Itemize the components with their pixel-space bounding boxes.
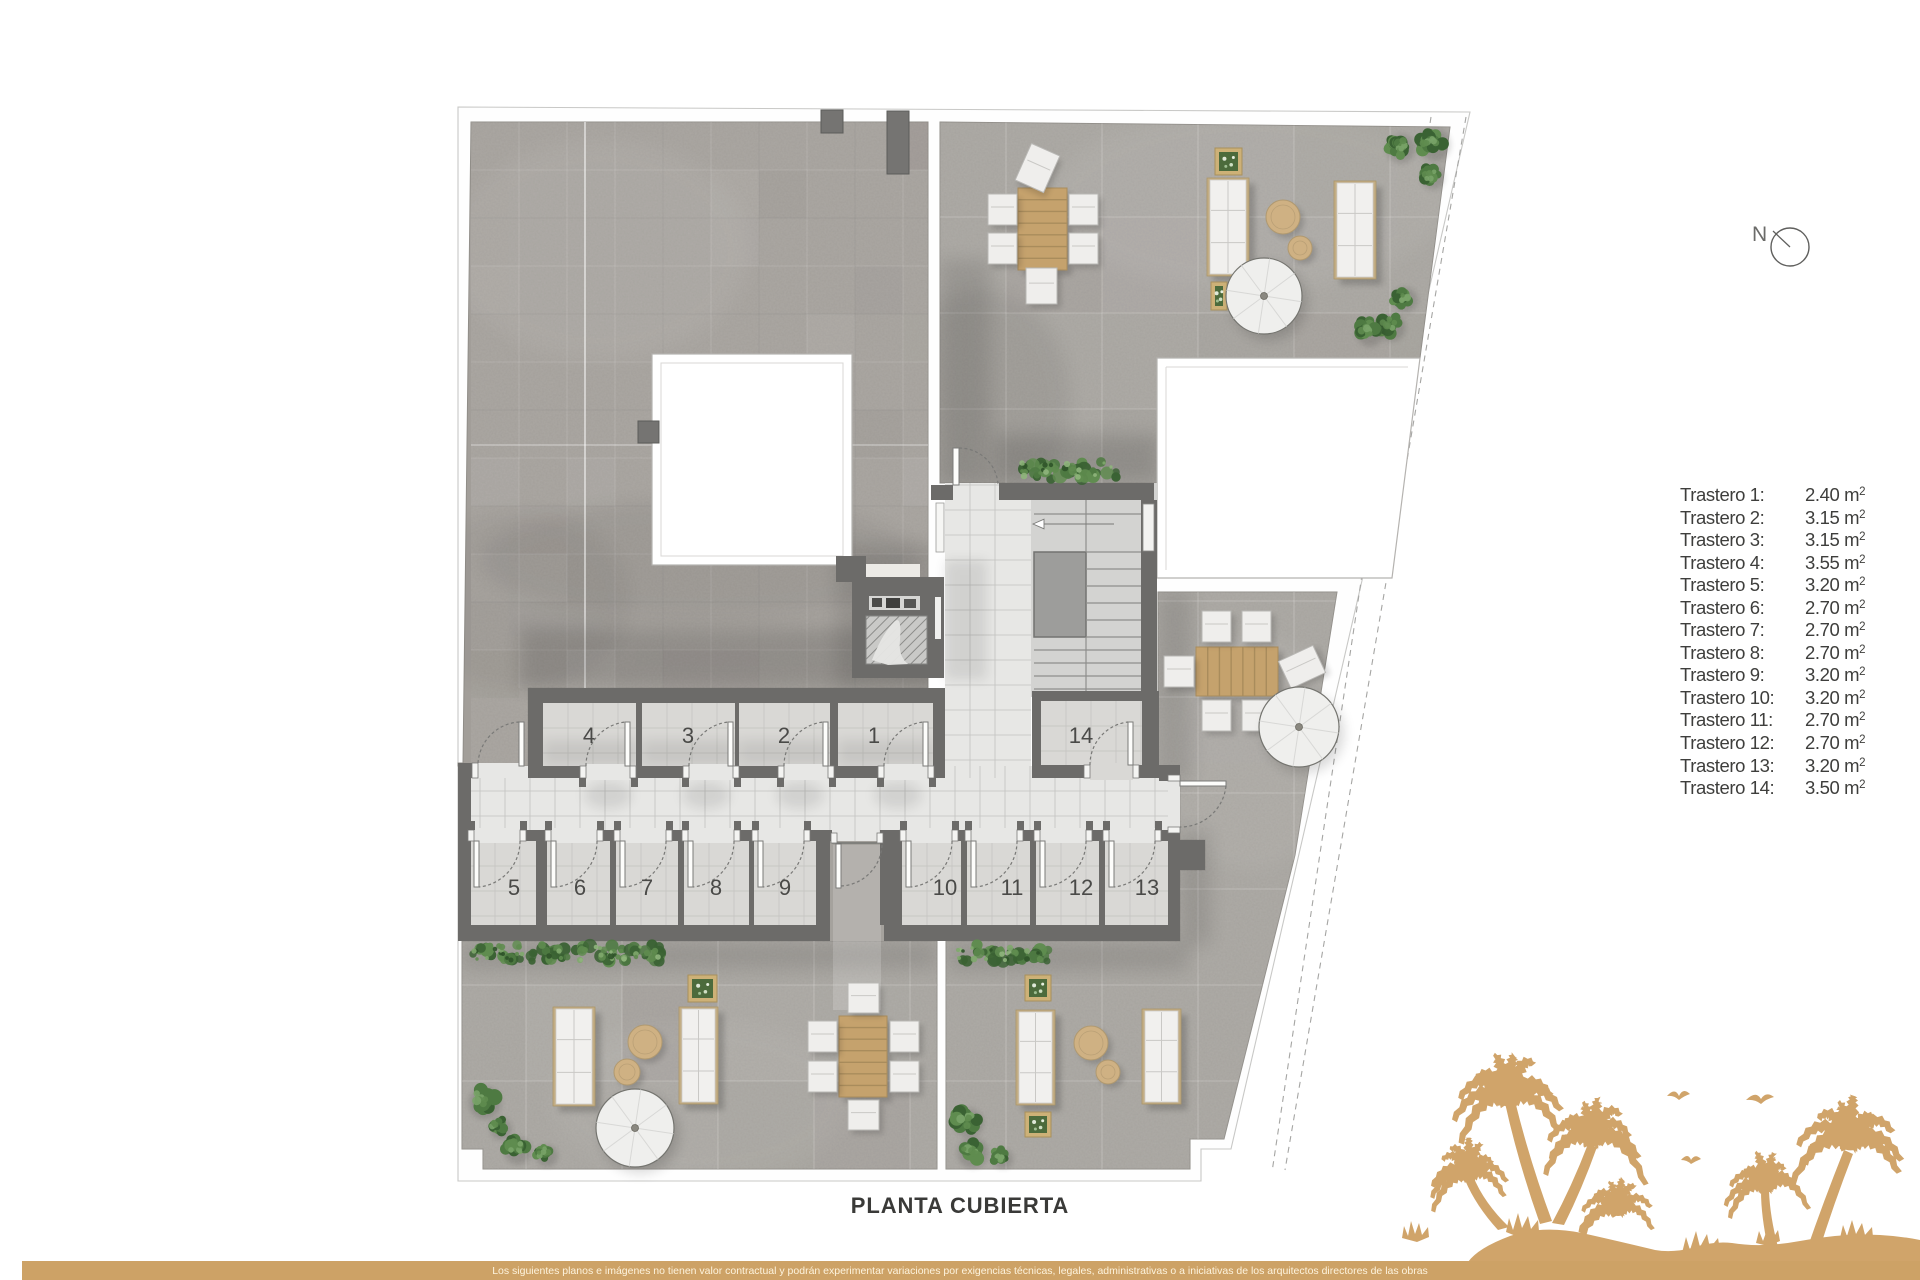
svg-text:9: 9 xyxy=(779,875,791,900)
svg-text:5: 5 xyxy=(508,875,520,900)
svg-text:3.20 m2: 3.20 m2 xyxy=(1805,664,1865,685)
svg-text:Trastero 6:: Trastero 6: xyxy=(1680,597,1764,618)
svg-text:2.70 m2: 2.70 m2 xyxy=(1805,732,1865,753)
svg-text:Trastero 5:: Trastero 5: xyxy=(1680,574,1764,595)
svg-text:Trastero 4:: Trastero 4: xyxy=(1680,552,1764,573)
svg-text:14: 14 xyxy=(1069,723,1093,748)
svg-text:Trastero 7:: Trastero 7: xyxy=(1680,619,1764,640)
svg-text:2.40 m2: 2.40 m2 xyxy=(1805,484,1865,505)
svg-text:Trastero 10:: Trastero 10: xyxy=(1680,687,1774,708)
svg-text:2.70 m2: 2.70 m2 xyxy=(1805,619,1865,640)
svg-text:3: 3 xyxy=(682,723,694,748)
svg-text:3.55 m2: 3.55 m2 xyxy=(1805,552,1865,573)
svg-text:3.50 m2: 3.50 m2 xyxy=(1805,777,1865,798)
svg-text:13: 13 xyxy=(1135,875,1159,900)
svg-text:Trastero 12:: Trastero 12: xyxy=(1680,732,1774,753)
svg-text:3.15 m2: 3.15 m2 xyxy=(1805,529,1865,550)
svg-text:11: 11 xyxy=(1001,875,1024,900)
svg-text:PLANTA CUBIERTA: PLANTA CUBIERTA xyxy=(851,1193,1069,1218)
svg-text:Los siguientes planos e imágen: Los siguientes planos e imágenes no tien… xyxy=(492,1265,1428,1277)
svg-text:Trastero 2:: Trastero 2: xyxy=(1680,507,1764,528)
svg-text:Trastero 14:: Trastero 14: xyxy=(1680,777,1774,798)
svg-text:2.70 m2: 2.70 m2 xyxy=(1805,709,1865,730)
svg-text:12: 12 xyxy=(1069,875,1093,900)
svg-text:3.20 m2: 3.20 m2 xyxy=(1805,755,1865,776)
svg-text:Trastero 8:: Trastero 8: xyxy=(1680,642,1764,663)
svg-text:3.15 m2: 3.15 m2 xyxy=(1805,507,1865,528)
svg-text:Trastero 11:: Trastero 11: xyxy=(1680,709,1773,730)
svg-text:4: 4 xyxy=(583,723,595,748)
svg-text:Trastero 1:: Trastero 1: xyxy=(1680,484,1764,505)
svg-text:10: 10 xyxy=(933,875,957,900)
svg-text:7: 7 xyxy=(641,875,653,900)
svg-text:Trastero 13:: Trastero 13: xyxy=(1680,755,1774,776)
svg-text:N: N xyxy=(1752,223,1767,246)
svg-text:Trastero 3:: Trastero 3: xyxy=(1680,529,1764,550)
svg-text:2: 2 xyxy=(778,723,790,748)
svg-text:1: 1 xyxy=(868,723,880,748)
svg-text:8: 8 xyxy=(710,875,722,900)
svg-text:3.20 m2: 3.20 m2 xyxy=(1805,687,1865,708)
svg-text:2.70 m2: 2.70 m2 xyxy=(1805,642,1865,663)
svg-text:Trastero 9:: Trastero 9: xyxy=(1680,664,1764,685)
svg-text:6: 6 xyxy=(574,875,586,900)
svg-text:2.70 m2: 2.70 m2 xyxy=(1805,597,1865,618)
svg-text:3.20 m2: 3.20 m2 xyxy=(1805,574,1865,595)
